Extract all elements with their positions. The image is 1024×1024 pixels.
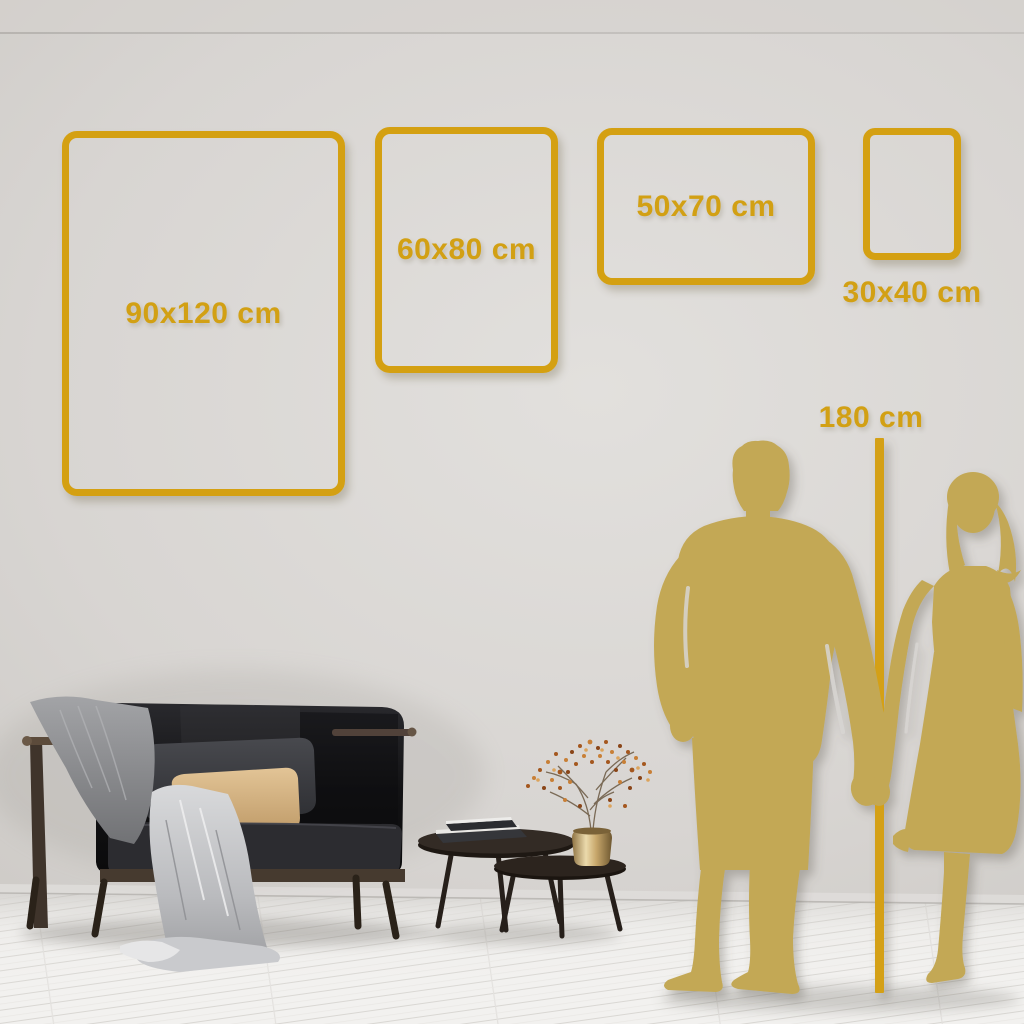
plant-branches bbox=[546, 752, 634, 830]
size-frame-90x120: 90x120 cm bbox=[62, 131, 345, 496]
height-label: 180 cm bbox=[791, 401, 951, 435]
sofa-right-dowel bbox=[332, 729, 414, 736]
size-label-60x80: 60x80 cm bbox=[397, 233, 536, 267]
brass-vase bbox=[572, 830, 612, 866]
poster-size-guide-scene: 90x120 cm 60x80 cm 50x70 cm 30x40 cm 180… bbox=[0, 0, 1024, 1024]
size-label-30x40: 30x40 cm bbox=[832, 276, 992, 310]
man-head bbox=[732, 441, 789, 511]
size-frame-50x70: 50x70 cm bbox=[597, 128, 815, 285]
table-floor-shadow bbox=[420, 924, 620, 944]
size-frame-60x80: 60x80 cm bbox=[375, 127, 558, 373]
size-label-50x70: 50x70 cm bbox=[636, 190, 775, 224]
size-frame-30x40 bbox=[863, 128, 961, 260]
woman-dress bbox=[904, 652, 1020, 854]
size-label-90x120: 90x120 cm bbox=[125, 297, 281, 331]
woman-hand bbox=[868, 778, 890, 806]
